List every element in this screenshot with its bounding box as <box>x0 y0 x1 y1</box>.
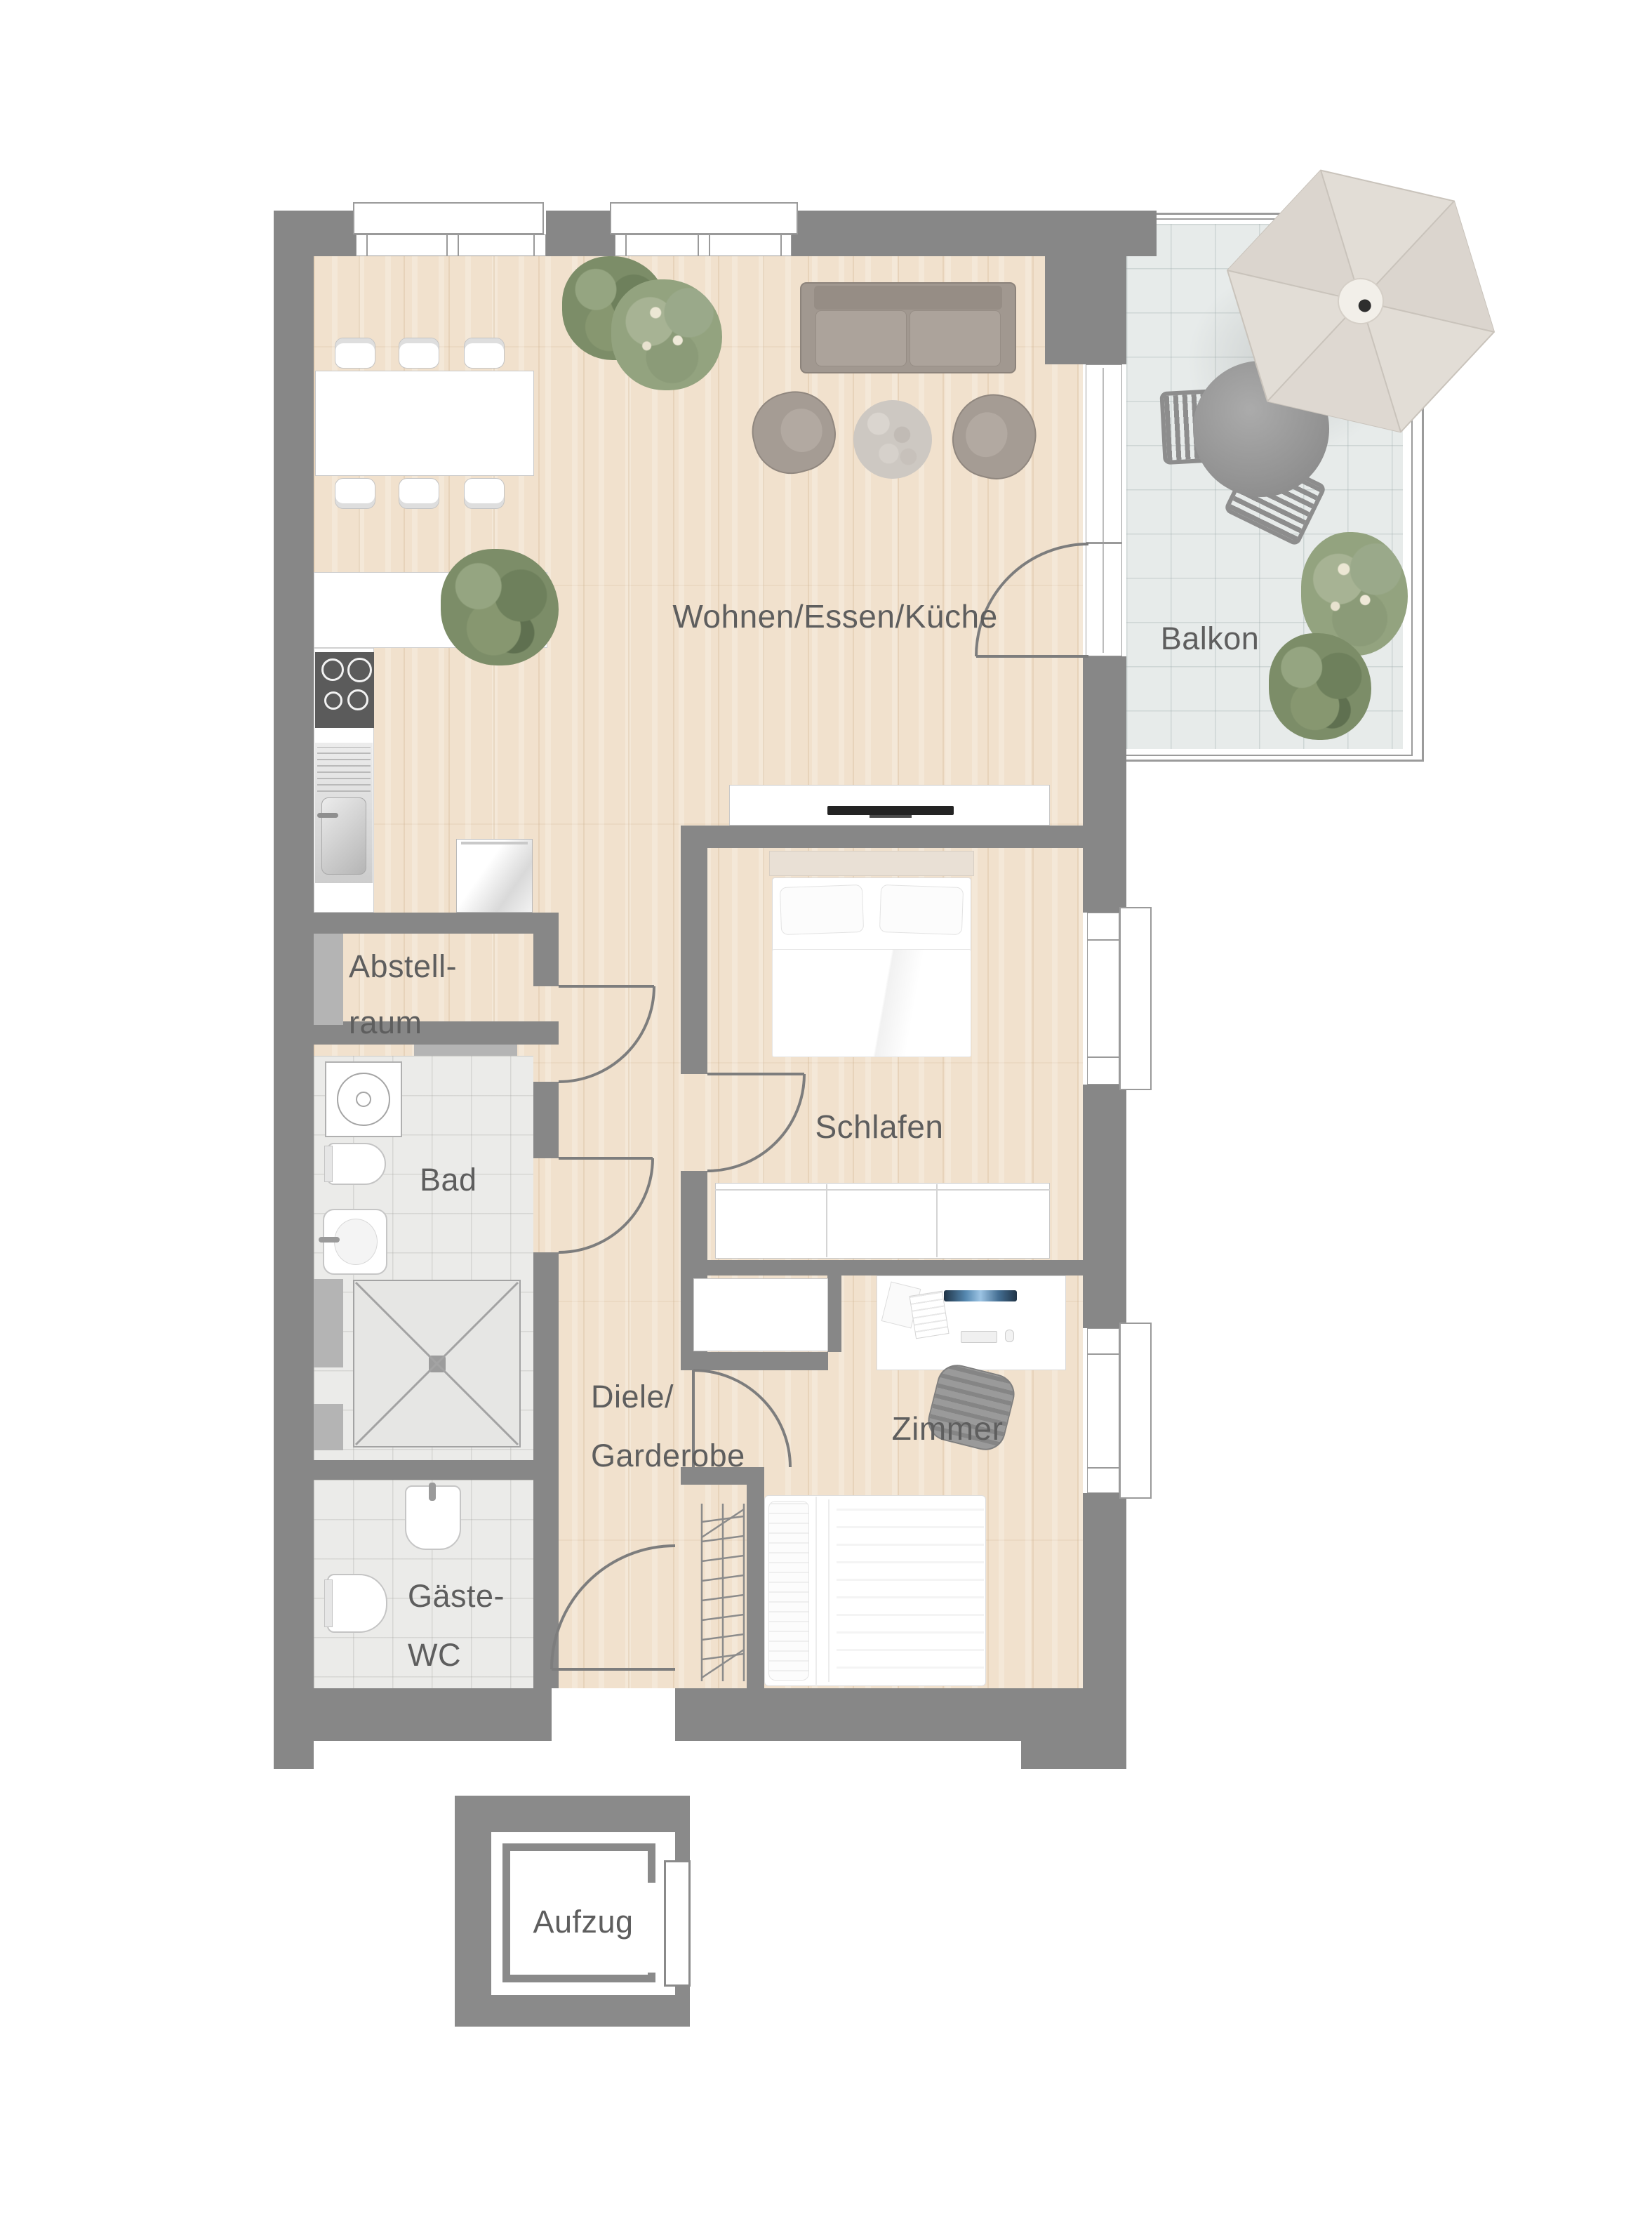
label-bath: Bad <box>420 1162 477 1198</box>
bath-door-swing <box>559 1158 653 1252</box>
entrance-door-swing <box>552 1546 675 1669</box>
label-elevator: Aufzug <box>495 1904 671 1940</box>
label-storage-line2: raum <box>349 995 457 1051</box>
label-guest-wc-line1: Gäste- <box>408 1567 505 1626</box>
label-storage: Abstell- raum <box>349 939 457 1051</box>
hall-wardrobe-hatch-icon <box>702 1504 744 1681</box>
label-balcony: Balkon <box>1105 621 1315 657</box>
label-living-room: Wohnen/Essen/Küche <box>625 597 1046 635</box>
label-bedroom: Schlafen <box>774 1108 985 1146</box>
label-room: Zimmer <box>842 1410 1053 1447</box>
storage-door-swing <box>559 986 654 1082</box>
label-hall: Diele/ Garderobe <box>591 1367 745 1485</box>
shower-cross-lines <box>356 1283 518 1445</box>
label-hall-line2: Garderobe <box>591 1426 745 1485</box>
floor-plan-canvas: Wohnen/Essen/Küche Balkon Abstell- raum … <box>0 0 1652 2233</box>
label-hall-line1: Diele/ <box>591 1367 745 1426</box>
label-storage-line1: Abstell- <box>349 939 457 995</box>
label-guest-wc: Gäste- WC <box>408 1567 505 1685</box>
label-guest-wc-line2: WC <box>408 1626 505 1685</box>
